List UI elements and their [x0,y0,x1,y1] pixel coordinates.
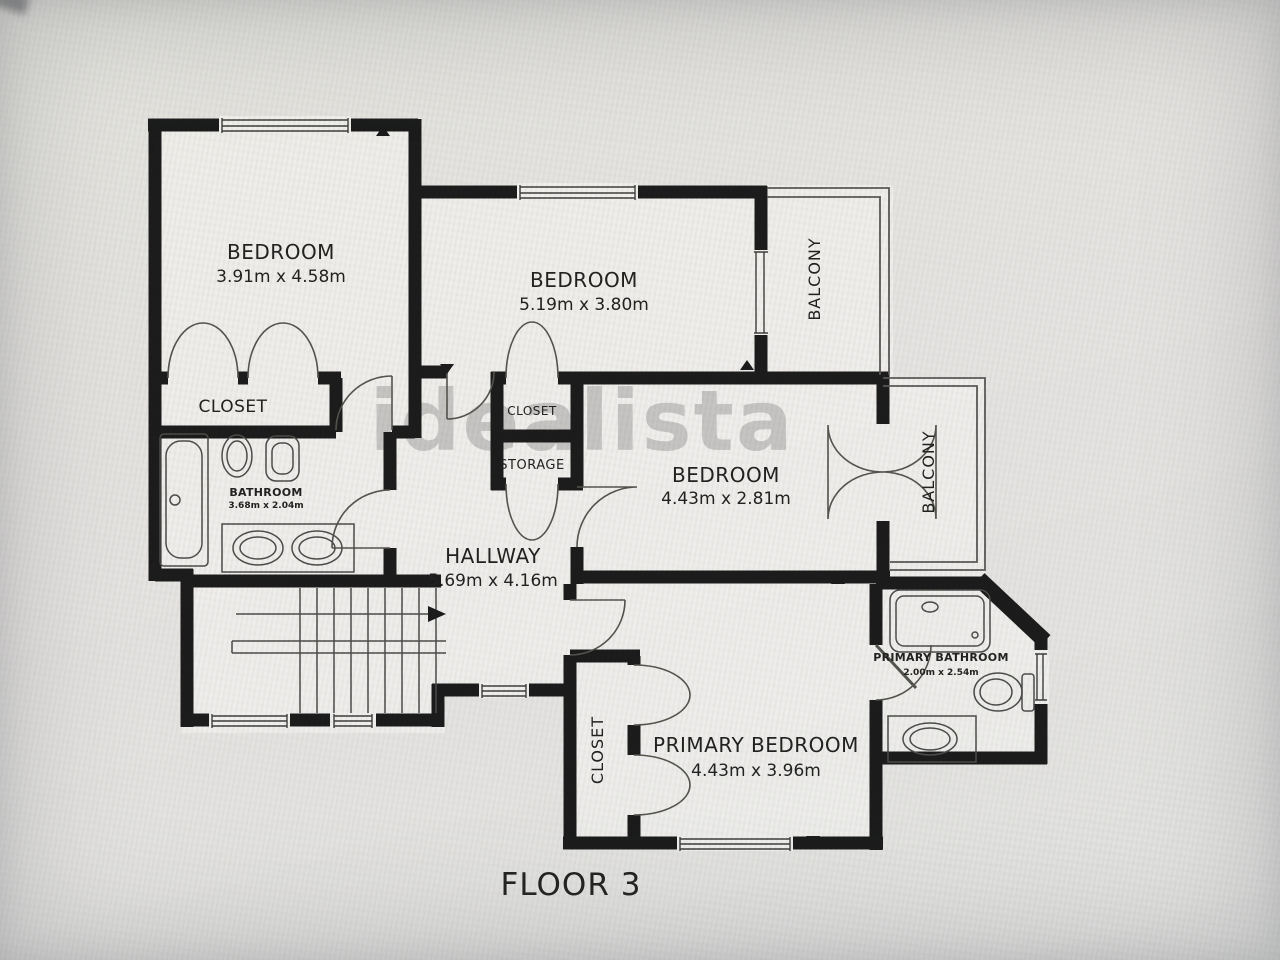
balcony-slider-bedroom2 [753,250,770,335]
bathroom-dims: 3.68m x 2.04m [228,501,303,511]
primary-bedroom-label: PRIMARY BEDROOM [653,733,859,757]
bedroom3-label: BEDROOM [672,463,780,487]
window-stairs-right [330,712,376,728]
primary-bathroom-label: PRIMARY BATHROOM [873,651,1008,664]
window-bedroom2-top [517,183,638,200]
bedroom1-label: BEDROOM [227,240,335,264]
floor-title: FLOOR 3 [501,867,642,903]
balcony2-label: BALCONY [919,430,938,513]
primary-closet-label: CLOSET [588,716,607,784]
closet1-label: CLOSET [198,397,267,417]
hallway-label: HALLWAY [445,544,541,568]
bedroom3-dims: 4.43m x 2.81m [661,489,791,509]
bedroom2-label: BEDROOM [530,268,638,292]
window-stairs-left [209,712,290,728]
primary-bathroom-dims: 2.00m x 2.54m [903,668,978,678]
hallway-dims: 5.69m x 4.16m [428,571,558,591]
window-hallway-bottom [479,682,529,698]
balcony1-label: BALCONY [805,237,824,320]
bedroom1-dims: 3.91m x 4.58m [216,267,346,287]
primary-bedroom-dims: 4.43m x 3.96m [691,761,821,781]
floor-plan-photo: idealista [0,0,1280,960]
window-bedroom1-top [219,116,351,133]
window-primary-bedroom-bottom [677,835,793,851]
closet2-label: CLOSET [507,404,557,418]
floor-plan-canvas: idealista [0,0,1280,960]
bedroom2-dims: 5.19m x 3.80m [519,295,649,315]
window-primary-bathroom-right [1033,650,1049,704]
storage-label: STORAGE [499,458,564,473]
bathroom-label: BATHROOM [229,486,302,499]
